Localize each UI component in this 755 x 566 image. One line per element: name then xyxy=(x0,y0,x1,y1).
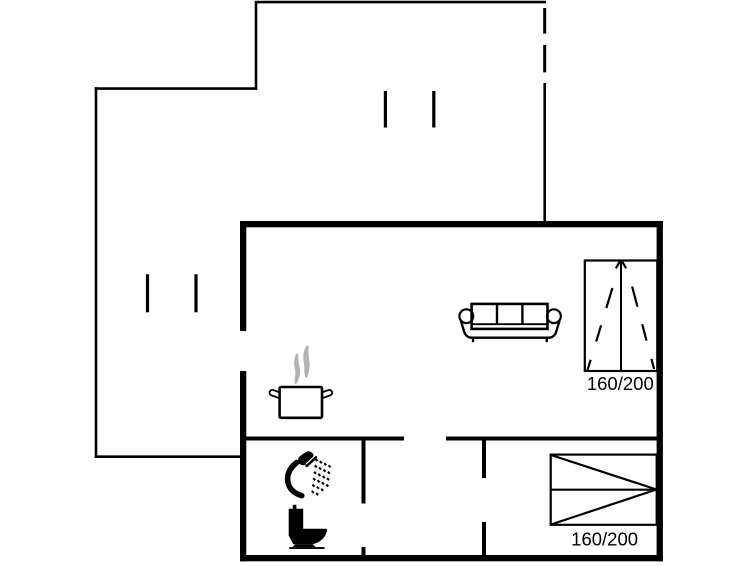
svg-text:160/200: 160/200 xyxy=(571,529,638,550)
svg-text:160/200: 160/200 xyxy=(587,373,654,394)
